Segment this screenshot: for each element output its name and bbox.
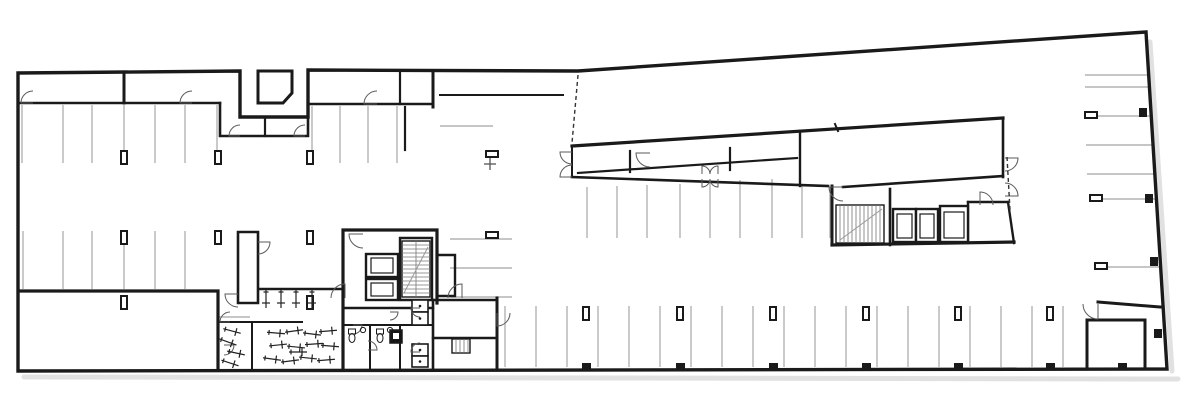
column (583, 307, 589, 320)
door-swing (21, 91, 33, 103)
wall-pilaster (1046, 363, 1055, 369)
storage-room (21, 291, 218, 368)
wall-pilaster (1150, 257, 1158, 266)
bike-handlebar (239, 350, 241, 358)
drain-dot (419, 349, 422, 352)
ladder (452, 339, 470, 353)
wall-pilaster (862, 363, 871, 369)
drain-dot (419, 305, 422, 308)
dashed-boundary (572, 75, 578, 143)
bicycle-icon (269, 340, 288, 350)
bike-seat (283, 359, 284, 364)
door-swing (364, 91, 377, 104)
floor-plan-svg (0, 0, 1200, 403)
wall-pilaster (1139, 108, 1147, 117)
bike-handlebar (318, 340, 319, 348)
bike-frame (263, 358, 281, 361)
bike-seat (221, 337, 223, 342)
wall-shadow (1150, 42, 1172, 371)
door-swing (1083, 304, 1098, 319)
bicycle-icon (305, 339, 324, 348)
column (121, 151, 127, 164)
bike-handlebar (330, 356, 331, 364)
bike-seat (265, 356, 266, 361)
wall-pilaster (1145, 194, 1153, 203)
drain-dot (419, 360, 422, 363)
bike-seat (271, 343, 272, 348)
bike-handlebar (332, 327, 333, 335)
bicycle-icon (263, 354, 282, 364)
staircase-left (402, 241, 430, 297)
bike-frame (269, 344, 287, 346)
walls-layer (18, 32, 1167, 371)
door-swing (229, 125, 240, 136)
column (307, 231, 313, 244)
wall-pilaster (1154, 329, 1162, 338)
shaft-room (238, 232, 258, 303)
bicycle-icon (267, 328, 286, 338)
bike-seat (289, 344, 290, 349)
toilet-icon (349, 329, 356, 343)
column (1085, 112, 1097, 118)
toilet-bowl (349, 334, 355, 343)
bicycle-icon (292, 290, 300, 308)
right-core-room (1008, 202, 1014, 243)
bicycle-icon (277, 290, 285, 308)
door-swing (702, 166, 710, 174)
elevator-car (897, 214, 912, 238)
door-swing (1005, 183, 1018, 196)
column (1090, 195, 1102, 201)
wall-shadow (24, 377, 1178, 379)
corner-room (1087, 320, 1145, 368)
door-swing (180, 91, 192, 103)
door-swing (710, 166, 718, 174)
door-swing (497, 313, 510, 326)
column (486, 151, 498, 157)
column (770, 307, 776, 320)
wall-pilaster (582, 363, 591, 369)
wall-pilaster (769, 363, 778, 369)
column (121, 231, 127, 244)
column (1095, 263, 1107, 269)
bike-frame (321, 345, 339, 347)
bike-handlebar (300, 343, 301, 351)
door-swing (349, 234, 363, 248)
wall-pilaster (954, 363, 963, 369)
bicycle-icon (281, 356, 300, 366)
column (1047, 307, 1053, 320)
bike-handlebar (312, 354, 313, 362)
toilet-icon (377, 329, 384, 343)
vent-shaft (258, 71, 292, 103)
column (677, 307, 683, 320)
door-swing (258, 242, 270, 254)
bicycle-icon (303, 329, 322, 339)
bicycle-icon (226, 347, 245, 359)
column (486, 232, 498, 238)
bike-seat (223, 358, 225, 363)
bicycle-icon (317, 355, 336, 365)
bike-frame (319, 330, 337, 332)
door-swing (294, 125, 305, 136)
column (955, 307, 961, 320)
bicycle-icon (220, 356, 240, 369)
bike-frame (281, 360, 299, 362)
bike-frame (285, 330, 303, 333)
bike-seat (301, 355, 302, 360)
column (863, 307, 869, 320)
bike-handlebar (293, 357, 294, 365)
bike-handlebar (297, 326, 298, 334)
wall-pilaster (676, 363, 685, 369)
bike-seat (305, 331, 306, 336)
column (215, 231, 221, 244)
bicycle-icon (285, 326, 304, 336)
door-swing (560, 165, 572, 177)
column (215, 151, 221, 164)
toilet-bowl (377, 334, 383, 343)
bike-handlebar (282, 341, 283, 349)
bicycle-icon (289, 348, 307, 356)
bike-frame (299, 357, 317, 359)
stairs-layer (402, 205, 884, 353)
mid-band-top-wall (572, 118, 1003, 146)
service-shaft-inner (393, 333, 399, 339)
mid-band-bottom-wall (843, 176, 1003, 187)
corner-room-outer (1098, 302, 1160, 307)
bike-frame (305, 343, 323, 344)
bike-handlebar (315, 331, 316, 339)
bike-frame (267, 332, 285, 334)
column (307, 151, 313, 164)
shadow-layer (24, 42, 1178, 379)
core-room (437, 255, 455, 296)
column (121, 296, 127, 309)
door-swing (636, 153, 650, 167)
bike-frame (303, 333, 321, 335)
bicycle-icon (222, 325, 241, 337)
bike-frame (221, 360, 238, 366)
bike-frame (220, 339, 237, 345)
bike-frame (287, 346, 305, 348)
mid-band-bottom-wall (572, 177, 828, 186)
shaft-inner (944, 212, 964, 238)
sink-icon (360, 327, 365, 332)
bicycle-icon (218, 335, 238, 349)
elevator-car (920, 214, 934, 238)
elevator-car (371, 258, 393, 273)
bike-handlebar (280, 329, 281, 337)
door-swing (390, 312, 398, 320)
bicycle-icon (319, 326, 338, 336)
bike-seat (287, 329, 288, 334)
elevator-car (371, 283, 393, 296)
columns-layer (121, 108, 1162, 369)
bike-handlebar (275, 356, 276, 364)
drain-dot (419, 317, 422, 320)
door-swing (560, 152, 572, 164)
wall-pilaster (1118, 363, 1127, 369)
drain-cross-icon (484, 158, 496, 170)
ladder-outline (452, 339, 470, 353)
door-swing (225, 294, 238, 307)
bike-parking-layer (218, 290, 339, 370)
bike-frame (317, 359, 335, 361)
bicycle-icon (321, 341, 340, 351)
bicycle-icon (262, 290, 270, 308)
mid-band-inner-wall (578, 158, 797, 173)
bike-seat (225, 327, 226, 332)
floor-plan-canvas (0, 0, 1200, 403)
bike-frame (223, 329, 240, 334)
staircase-right (836, 205, 884, 243)
bike-handlebar (334, 342, 335, 350)
